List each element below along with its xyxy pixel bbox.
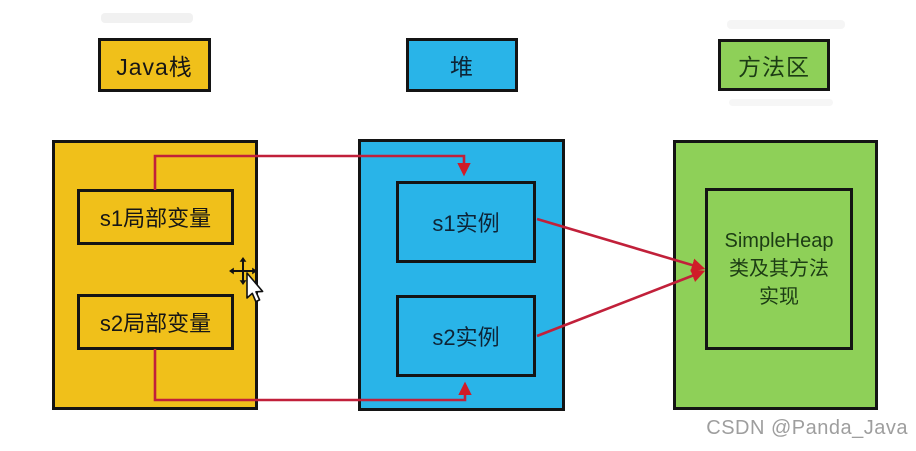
diagram-canvas: Java栈 堆 方法区 s1局部变量 s2局部变量 s1实例 s2实例 Simp… <box>0 0 916 451</box>
method-area-title-label: 方法区 <box>738 48 810 82</box>
s2-instance-label: s2实例 <box>432 320 499 352</box>
s1-instance-box: s1实例 <box>396 181 536 263</box>
s1-local-var-box: s1局部变量 <box>77 189 234 245</box>
artifact-smudge <box>101 13 193 23</box>
artifact-smudge <box>727 20 845 29</box>
java-stack-title-box: Java栈 <box>98 38 211 92</box>
simpleheap-line-2: 类及其方法 <box>729 255 829 283</box>
simpleheap-line-3: 实现 <box>759 283 799 311</box>
s2-instance-box: s2实例 <box>396 295 536 377</box>
java-stack-title-label: Java栈 <box>116 48 193 82</box>
heap-title-box: 堆 <box>406 38 518 92</box>
java-stack-region <box>52 140 258 410</box>
heap-title-label: 堆 <box>450 48 474 82</box>
method-area-title-box: 方法区 <box>718 39 830 91</box>
s1-instance-label: s1实例 <box>432 206 499 238</box>
simpleheap-line-1: SimpleHeap <box>725 227 834 255</box>
simpleheap-class-box: SimpleHeap 类及其方法 实现 <box>705 188 853 350</box>
s2-local-var-box: s2局部变量 <box>77 294 234 350</box>
s2-local-var-label: s2局部变量 <box>100 306 211 338</box>
csdn-watermark: CSDN @Panda_Java <box>700 417 908 440</box>
artifact-smudge <box>729 99 833 106</box>
s1-local-var-label: s1局部变量 <box>100 201 211 233</box>
